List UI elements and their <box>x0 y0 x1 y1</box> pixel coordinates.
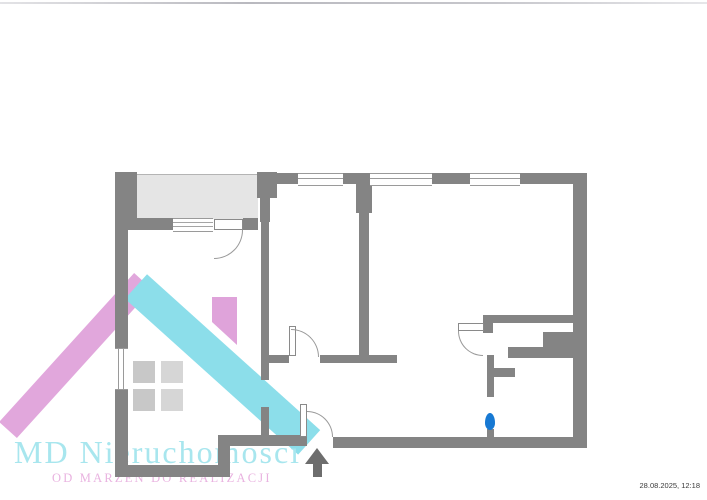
wall <box>333 437 587 448</box>
wall <box>115 228 128 350</box>
wall <box>573 173 587 448</box>
window <box>470 173 520 186</box>
entrance-arrow-icon <box>305 448 329 477</box>
wall <box>128 218 173 230</box>
wall <box>483 323 493 333</box>
wall <box>115 465 230 477</box>
window <box>115 348 128 390</box>
wall <box>483 315 575 323</box>
door-swing-arc <box>291 329 319 357</box>
arrow-stem <box>313 464 322 477</box>
wall <box>115 387 128 477</box>
wall <box>243 218 258 230</box>
door-swing-arc <box>458 331 483 356</box>
wall <box>487 429 494 438</box>
door-leaf <box>300 404 307 437</box>
wall <box>218 435 230 477</box>
door-swing-arc <box>214 230 243 259</box>
window <box>173 218 213 232</box>
wall <box>260 196 270 222</box>
wall <box>261 355 289 363</box>
wall <box>543 332 573 358</box>
balcony <box>137 174 258 219</box>
floor-plan <box>0 0 707 500</box>
arrow-head <box>305 448 329 464</box>
wall <box>257 172 277 198</box>
door-marker-pin <box>485 413 495 430</box>
scanned-floor-plan-page: MD Nieruchomości OD MARZEŃ DO REALIZACJI <box>0 0 707 500</box>
wall <box>261 407 269 437</box>
wall <box>277 173 298 184</box>
window <box>370 173 432 186</box>
door-leaf <box>214 219 243 230</box>
wall <box>432 173 470 184</box>
door-leaf <box>458 323 484 331</box>
wall <box>487 355 494 397</box>
door-swing-arc <box>307 411 333 437</box>
wall <box>494 368 515 377</box>
wall <box>520 173 587 184</box>
wall <box>320 355 397 363</box>
wall <box>508 347 543 358</box>
wall <box>359 182 369 363</box>
window <box>298 173 343 186</box>
